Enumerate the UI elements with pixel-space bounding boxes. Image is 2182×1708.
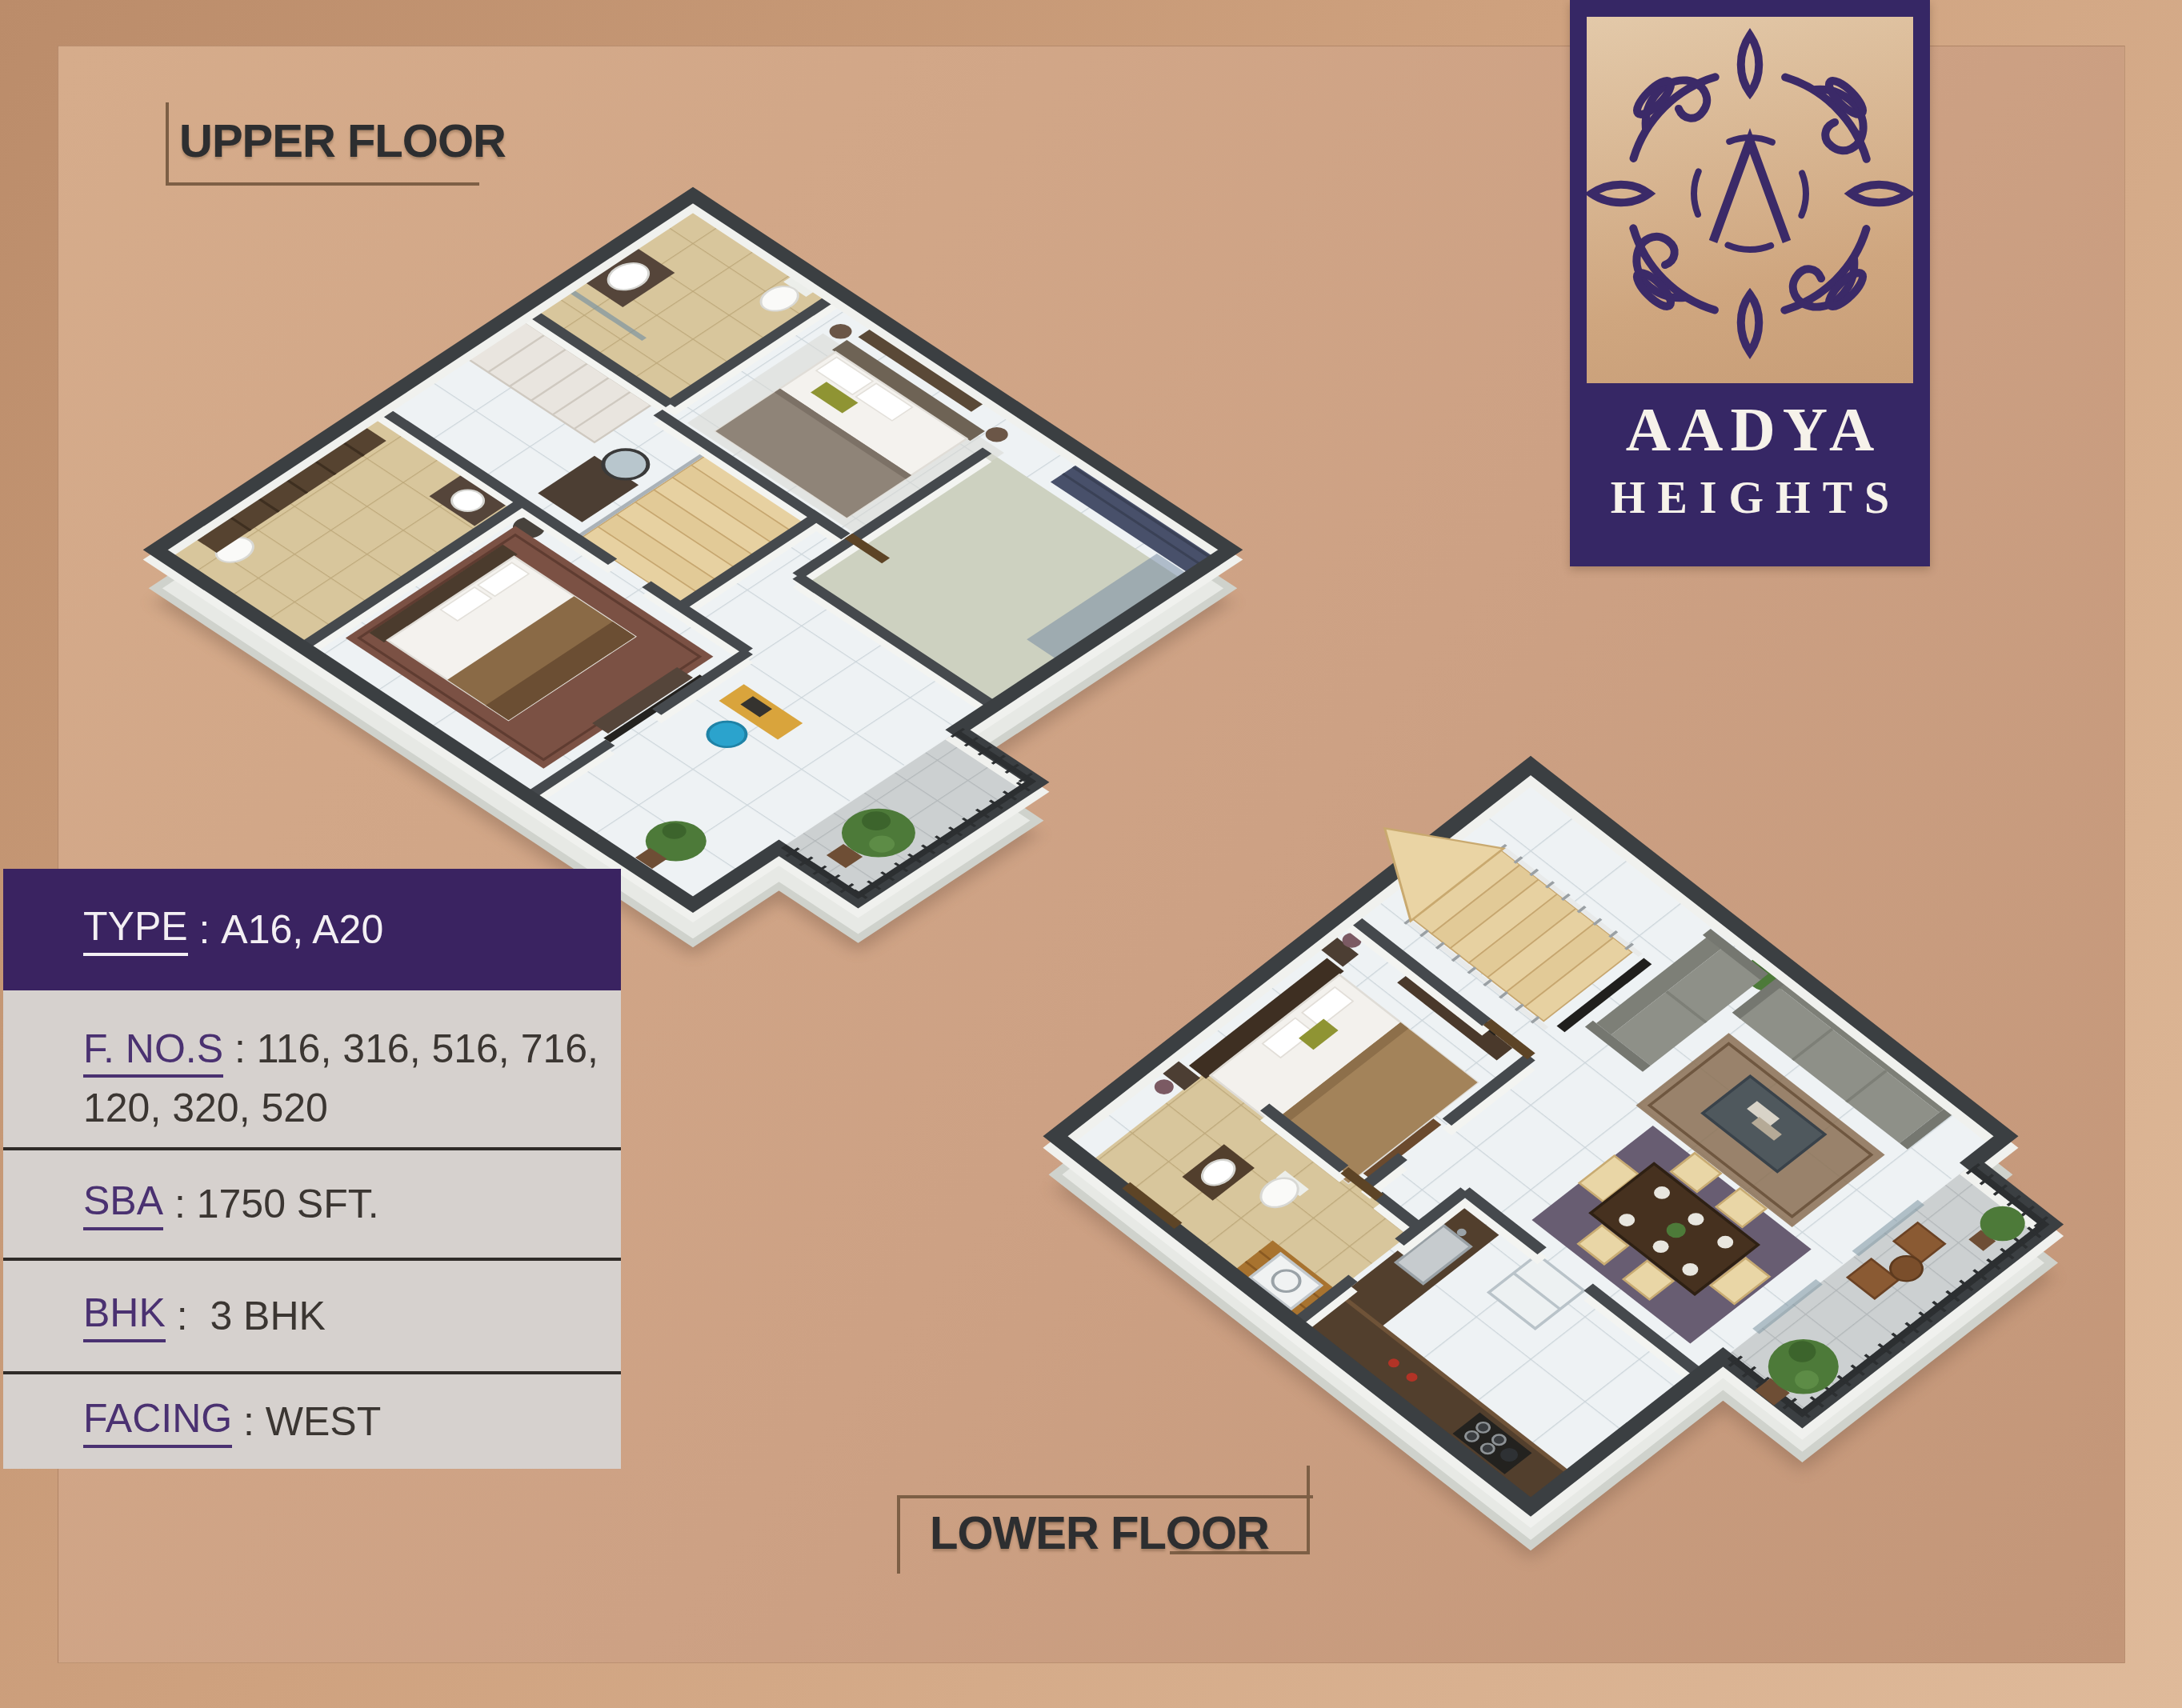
separator: :	[188, 906, 222, 953]
brochure-page: UPPER FLOOR LOWER FLOOR TYPE : A16, A20 …	[0, 0, 2182, 1708]
info-label-facing: FACING	[83, 1395, 232, 1448]
info-row-facing: FACING : WEST	[3, 1371, 621, 1469]
info-value-bhk: 3 BHK	[210, 1293, 326, 1339]
separator: :	[163, 1181, 197, 1227]
logo-tagline: HEIGHTS	[1570, 472, 1930, 523]
lower-plan-body	[1015, 738, 2084, 1580]
upper-floor-title: UPPER FLOOR	[179, 114, 506, 167]
info-label-fnos: F. NO.S	[83, 1026, 223, 1078]
info-value-facing: WEST	[266, 1398, 381, 1445]
separator: :	[166, 1293, 210, 1339]
info-value-fnos-line1: 116, 316, 516, 716,	[257, 1026, 599, 1071]
info-value-type: A16, A20	[221, 906, 383, 953]
info-value-sba: 1750 SFT.	[197, 1181, 379, 1227]
info-row-type: TYPE : A16, A20	[3, 869, 621, 990]
info-row-sba: SBA : 1750 SFT.	[3, 1147, 621, 1258]
info-label-bhk: BHK	[83, 1290, 166, 1342]
lambda-monogram-icon	[1713, 141, 1787, 242]
logo-emblem	[1587, 17, 1913, 383]
mandala-ornament	[1591, 35, 1908, 352]
info-label-type: TYPE	[83, 903, 188, 956]
separator: :	[223, 1026, 257, 1071]
info-value-fnos-line2: 120, 320, 520	[83, 1078, 621, 1138]
info-label-sba: SBA	[83, 1178, 163, 1230]
info-row-bhk: BHK : 3 BHK	[3, 1258, 621, 1371]
info-row-flat-numbers: F. NO.S : 116, 316, 516, 716, 120, 320, …	[3, 990, 621, 1147]
logo-name: AADYA	[1570, 394, 1930, 466]
lower-floor-title: LOWER FLOOR	[930, 1506, 1269, 1559]
lower-floor-bracket-riser	[1307, 1466, 1310, 1554]
logo-aadya-heights: AADYA HEIGHTS	[1570, 0, 1930, 566]
separator: :	[232, 1398, 266, 1445]
mandala-icon	[1587, 17, 1913, 383]
info-panel: TYPE : A16, A20 F. NO.S : 116, 316, 516,…	[3, 869, 621, 1469]
